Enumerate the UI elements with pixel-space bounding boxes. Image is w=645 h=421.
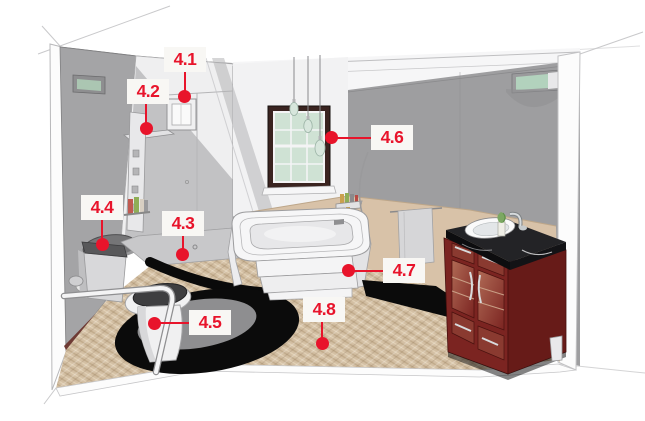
callout-4-7-label: 4.7 [383, 258, 425, 283]
shower-niche [167, 99, 196, 130]
left-transom-window [73, 75, 105, 94]
callout-4-6-leader [336, 137, 372, 139]
callout-4-8-label: 4.8 [303, 297, 345, 322]
callout-4-6-label: 4.6 [371, 125, 413, 150]
flush-knob [69, 276, 83, 286]
callout-4-1-dot [178, 90, 191, 103]
figure-canvas: 4.1 4.2 4.3 4.4 4.5 4.6 4.7 4.8 [0, 0, 645, 421]
callout-4-5-dot [148, 317, 161, 330]
callout-4-3-label: 4.3 [162, 211, 204, 236]
vanity [444, 212, 566, 380]
callout-4-2-label: 4.2 [127, 79, 169, 104]
vanity-plant [497, 212, 506, 236]
callout-4-5-label: 4.5 [189, 310, 231, 335]
callout-4-7-leader [353, 270, 384, 272]
callout-4-1-label: 4.1 [164, 47, 206, 72]
callout-4-8-dot [316, 337, 329, 350]
callout-4-2-dot [140, 122, 153, 135]
tub-steps [256, 256, 358, 300]
callout-4-5-leader [160, 322, 190, 324]
window-sill [262, 186, 336, 195]
vanity-foot [550, 336, 562, 361]
callout-4-6-dot [325, 131, 338, 144]
callout-4-7-dot [342, 264, 355, 277]
callout-4-3-dot [176, 248, 189, 261]
callout-4-4-dot [96, 238, 109, 251]
callout-4-4-label: 4.4 [81, 195, 123, 220]
tub-control [334, 219, 344, 225]
